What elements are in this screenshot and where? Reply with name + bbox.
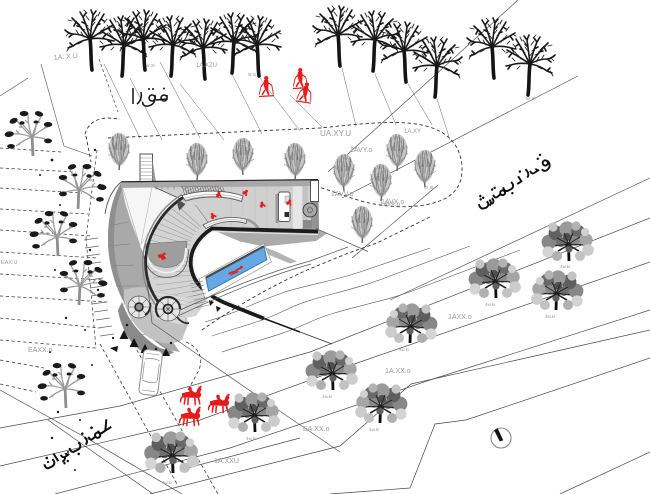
svg-text:1A.XY: 1A.XY bbox=[404, 129, 421, 135]
svg-text:EAXX.o: EAXX.o bbox=[28, 347, 53, 354]
svg-text:1AVY.o: 1AVY.o bbox=[350, 147, 372, 154]
svg-text:1AVX.o: 1AVX.o bbox=[380, 202, 401, 208]
svg-text:w a: w a bbox=[248, 72, 256, 78]
svg-text:4w.ki: 4w.ki bbox=[485, 302, 495, 307]
svg-text:1A.XZU: 1A.XZU bbox=[196, 63, 217, 69]
svg-text:4w.ki: 4w.ki bbox=[560, 264, 570, 269]
svg-text:4w.ki: 4w.ki bbox=[162, 480, 172, 485]
svg-text:UA.XY.U: UA.XY.U bbox=[320, 129, 351, 138]
svg-text:1AXX.o: 1AXX.o bbox=[448, 314, 472, 321]
svg-text:w xi: w xi bbox=[146, 63, 155, 69]
svg-text:EA.XX.o: EA.XX.o bbox=[303, 426, 330, 433]
svg-text:4w.ki: 4w.ki bbox=[399, 347, 409, 352]
svg-text:1A.XXU: 1A.XXU bbox=[214, 458, 239, 465]
svg-text:4w.ki: 4w.ki bbox=[369, 427, 379, 432]
svg-text:4w.ki: 4w.ki bbox=[246, 436, 256, 441]
svg-text:EAX:U: EAX:U bbox=[1, 260, 18, 266]
svg-text:4w.ki: 4w.ki bbox=[322, 394, 332, 399]
svg-text:w xi: w xi bbox=[525, 96, 535, 102]
svg-text:4w.ki: 4w.ki bbox=[545, 314, 555, 319]
svg-text:1AVV.o: 1AVV.o bbox=[331, 191, 354, 198]
svg-text:1A.XX.o: 1A.XX.o bbox=[385, 368, 411, 375]
svg-text:w xi: w xi bbox=[423, 185, 433, 191]
